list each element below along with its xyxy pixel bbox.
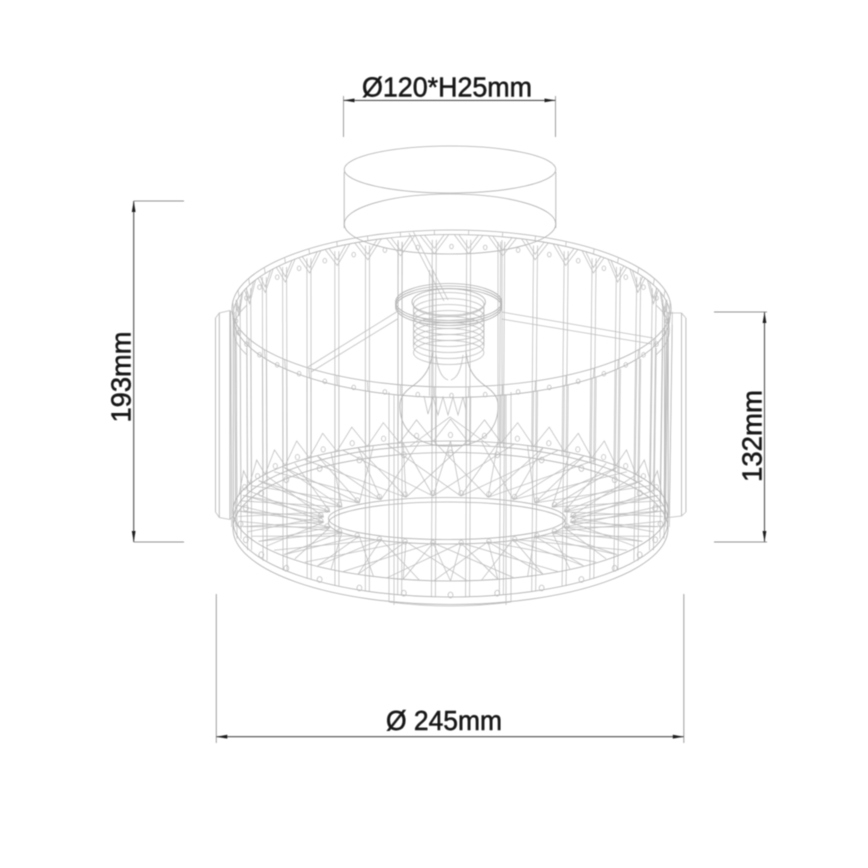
- svg-text:Ø120*H25mm: Ø120*H25mm: [362, 72, 532, 103]
- svg-text:193mm: 193mm: [106, 332, 137, 423]
- svg-text:132mm: 132mm: [737, 390, 768, 482]
- svg-text:Ø 245mm: Ø 245mm: [386, 705, 502, 736]
